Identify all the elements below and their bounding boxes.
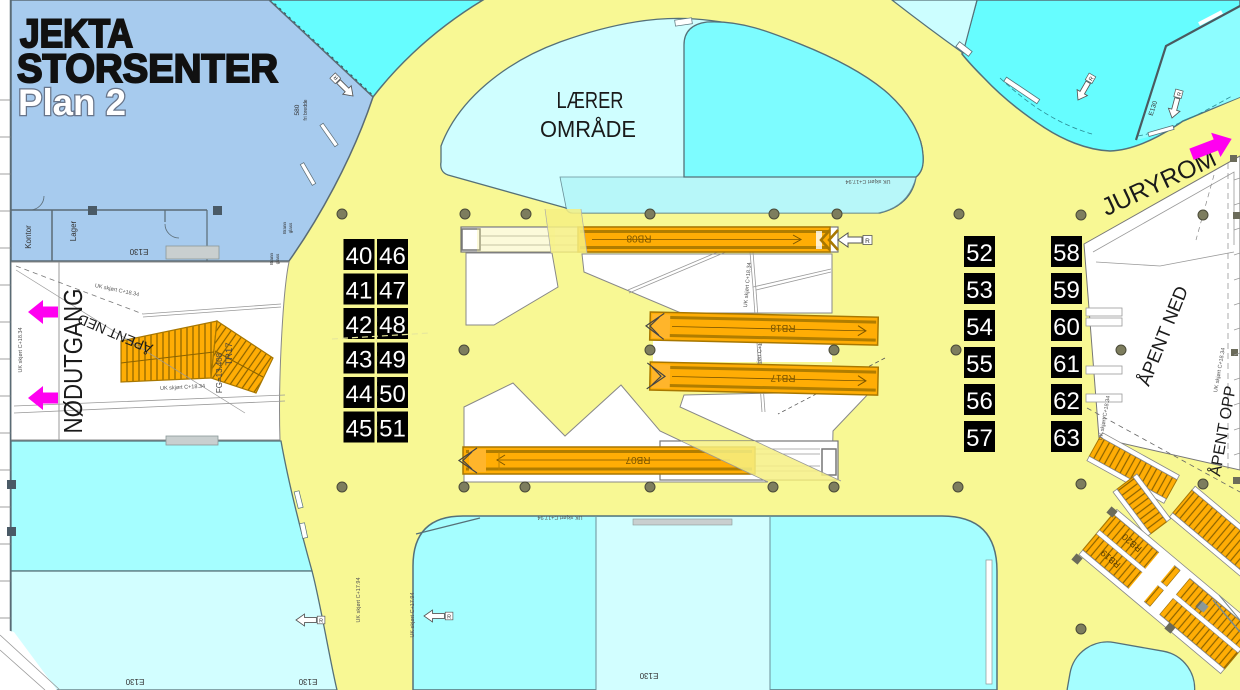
- svg-text:fri bredde: fri bredde: [303, 99, 309, 120]
- svg-text:49: 49: [379, 347, 406, 374]
- svg-text:59: 59: [1053, 277, 1080, 304]
- svg-text:50: 50: [379, 381, 406, 408]
- svg-text:43: 43: [346, 347, 373, 374]
- svg-text:46: 46: [379, 243, 406, 270]
- svg-text:Plan 2: Plan 2: [18, 82, 126, 123]
- svg-text:OMRÅDE: OMRÅDE: [540, 115, 636, 142]
- svg-text:61: 61: [1053, 351, 1080, 378]
- svg-text:glass: glass: [275, 253, 280, 264]
- svg-text:TR17: TR17: [224, 342, 235, 365]
- svg-text:63: 63: [1053, 425, 1080, 452]
- svg-text:E130: E130: [129, 247, 148, 256]
- svg-text:42: 42: [346, 312, 373, 339]
- svg-text:580: 580: [294, 104, 301, 115]
- svg-text:54: 54: [966, 314, 993, 341]
- svg-text:Lager: Lager: [69, 220, 78, 241]
- svg-text:glass: glass: [288, 222, 293, 233]
- svg-text:UK skjørt C+18.34: UK skjørt C+18.34: [18, 327, 24, 372]
- svg-text:52: 52: [966, 240, 993, 267]
- svg-text:RB08: RB08: [626, 233, 651, 244]
- svg-text:47: 47: [379, 278, 406, 305]
- svg-text:Brann: Brann: [282, 222, 287, 235]
- svg-text:57: 57: [966, 425, 993, 452]
- svg-text:LÆRER: LÆRER: [557, 87, 624, 113]
- svg-text:RB17: RB17: [770, 372, 796, 384]
- svg-text:62: 62: [1053, 388, 1080, 415]
- svg-text:UK skjørt C+17.94: UK skjørt C+17.94: [410, 592, 416, 637]
- svg-text:60: 60: [1053, 314, 1080, 341]
- svg-text:FG=13.408: FG=13.408: [215, 352, 224, 393]
- svg-text:E130: E130: [125, 677, 144, 686]
- svg-text:51: 51: [379, 416, 406, 443]
- svg-text:40: 40: [346, 243, 373, 270]
- svg-text:44: 44: [346, 381, 373, 408]
- svg-text:56: 56: [966, 388, 993, 415]
- svg-text:RB07: RB07: [625, 454, 650, 465]
- svg-text:E130: E130: [639, 671, 658, 680]
- svg-text:UK skjørt C+17.94: UK skjørt C+17.94: [356, 577, 362, 622]
- svg-text:UK skjørt C+17.94: UK skjørt C+17.94: [845, 178, 890, 184]
- svg-text:53: 53: [966, 277, 993, 304]
- svg-text:NØDUTGANG: NØDUTGANG: [58, 289, 88, 434]
- svg-text:55: 55: [966, 351, 993, 378]
- svg-text:UK skjørt C+17.94: UK skjørt C+17.94: [537, 514, 582, 520]
- svg-text:58: 58: [1053, 240, 1080, 267]
- svg-text:RB18: RB18: [770, 322, 796, 334]
- svg-text:41: 41: [346, 278, 373, 305]
- svg-text:Kontor: Kontor: [24, 225, 33, 249]
- svg-text:E130: E130: [298, 677, 317, 686]
- svg-text:45: 45: [346, 416, 373, 443]
- svg-text:Brann: Brann: [269, 253, 274, 266]
